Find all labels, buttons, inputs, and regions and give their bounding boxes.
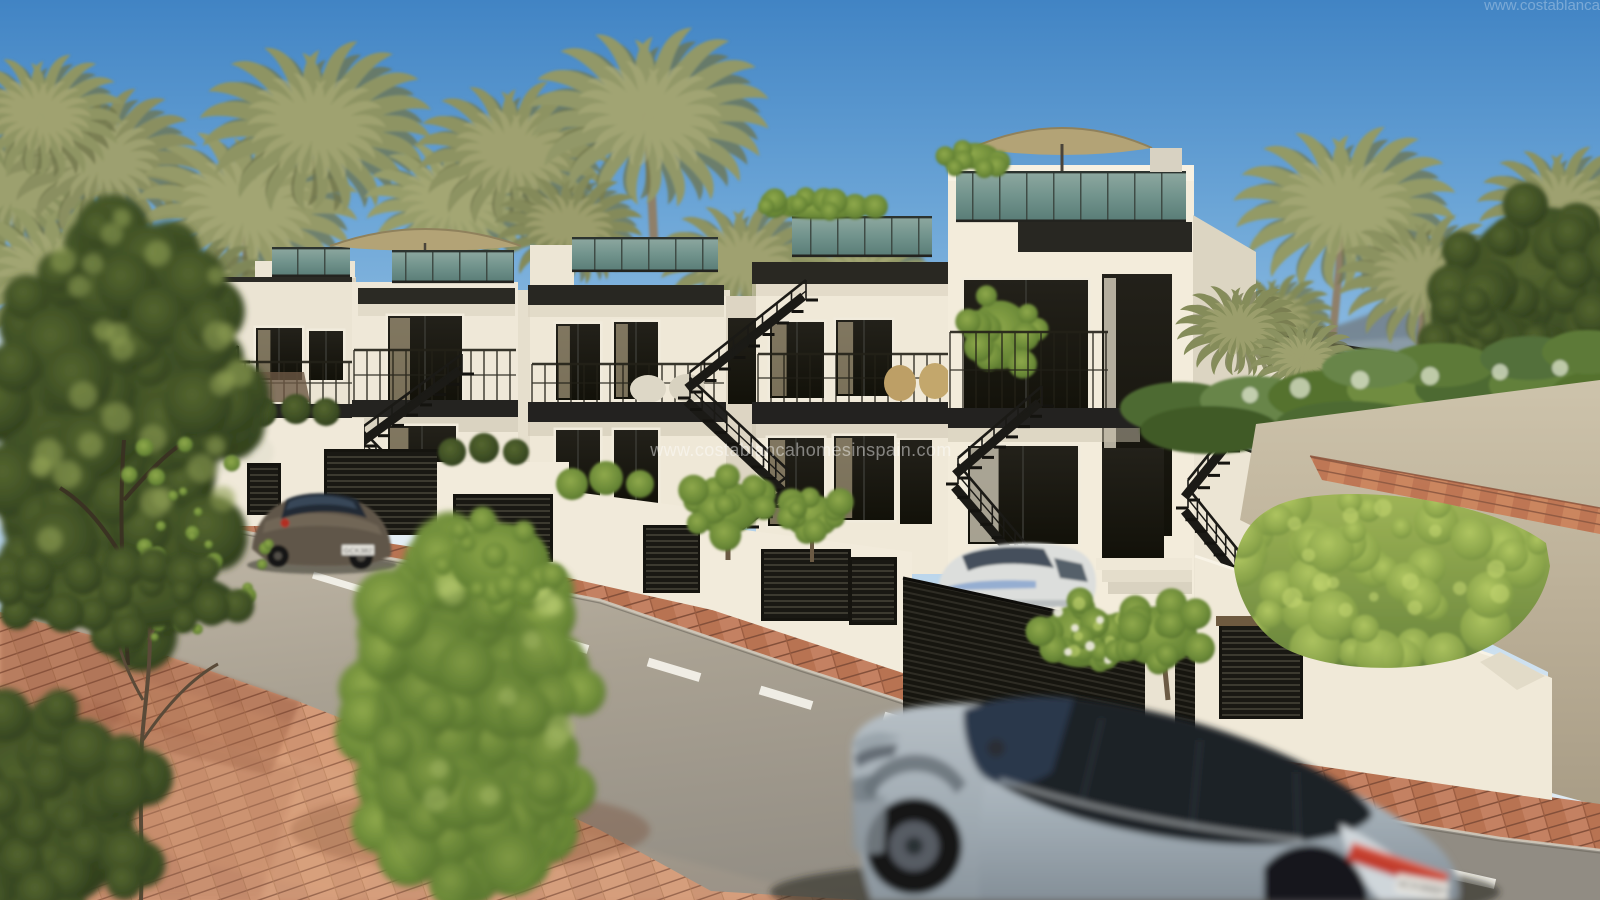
- svg-text:GCK382: GCK382: [344, 546, 373, 555]
- svg-text:www.costablanca: www.costablanca: [1483, 0, 1600, 14]
- svg-text:www.costablancahomesinspain.co: www.costablancahomesinspain.com: [649, 440, 952, 460]
